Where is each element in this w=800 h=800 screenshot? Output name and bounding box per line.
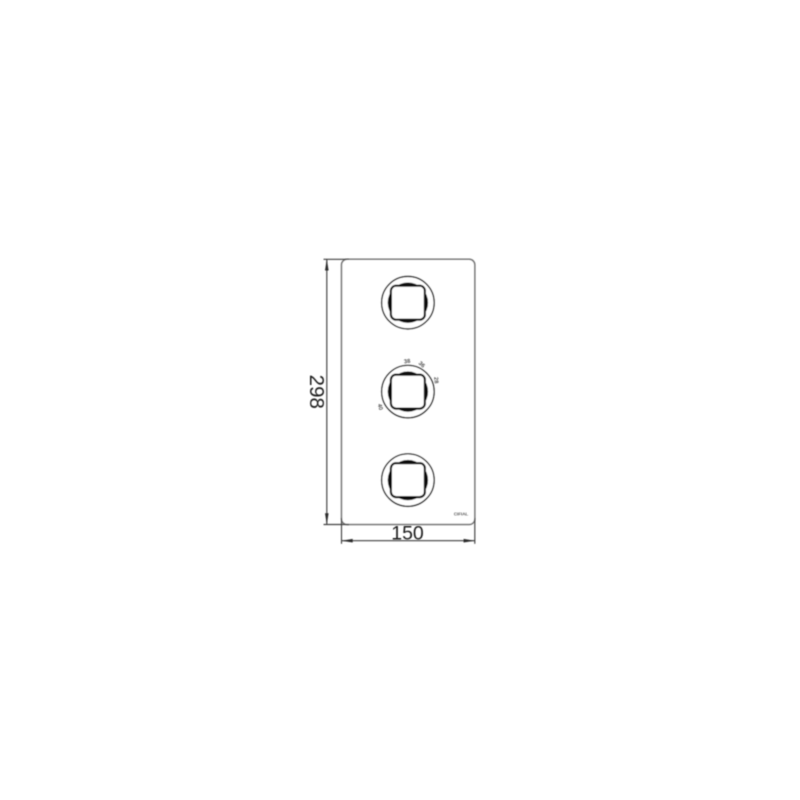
svg-text:298: 298 xyxy=(305,375,328,409)
svg-text:CIFIAL: CIFIAL xyxy=(454,512,469,517)
svg-text:150: 150 xyxy=(391,522,424,544)
svg-text:28: 28 xyxy=(432,377,439,385)
